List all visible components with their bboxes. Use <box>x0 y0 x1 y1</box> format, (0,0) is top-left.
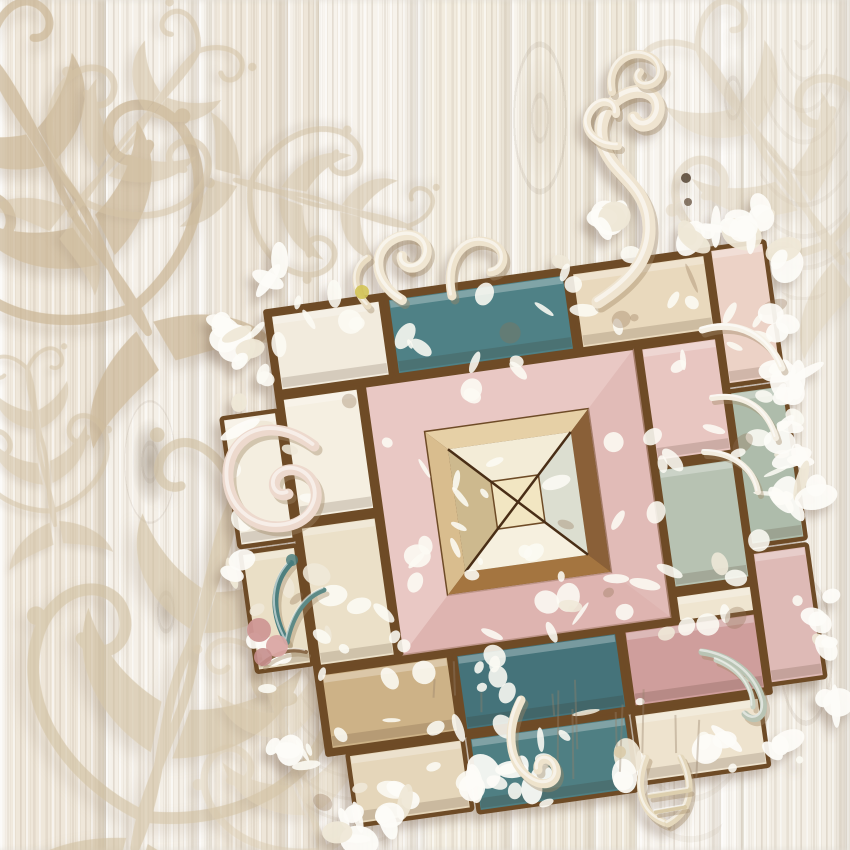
grunge-blob <box>382 718 400 722</box>
drip-mark <box>675 715 676 753</box>
accent-dot <box>614 746 626 758</box>
accent-dot <box>247 618 271 642</box>
accent-dot <box>355 285 369 299</box>
drip-mark <box>454 661 455 695</box>
edge-lace-blob <box>820 586 842 606</box>
drip-mark <box>642 689 643 753</box>
decorative-wood-wallpaper <box>0 0 850 850</box>
ornament-art-layer <box>0 0 850 850</box>
grunge-blob <box>795 756 803 764</box>
edge-lace-blob <box>230 392 249 414</box>
drip-mark <box>558 690 559 761</box>
drip-mark <box>434 679 435 697</box>
accent-dot <box>681 173 691 183</box>
damask-ornament <box>174 90 449 311</box>
grunge-blob <box>258 684 276 693</box>
accent-dot <box>254 648 272 666</box>
drip-mark <box>616 712 617 747</box>
drip-mark <box>572 709 573 779</box>
damask-ornament <box>0 0 311 469</box>
accent-dot <box>684 198 692 206</box>
accent-dot <box>286 554 298 566</box>
